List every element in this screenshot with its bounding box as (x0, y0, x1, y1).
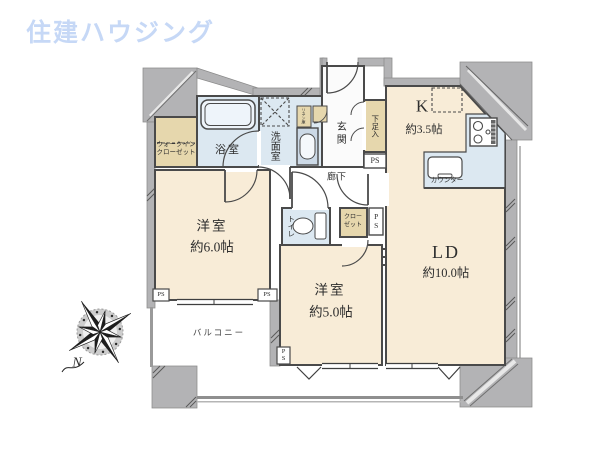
label-closet-line2: ゼット (344, 222, 362, 228)
compass-north-label: N (72, 354, 81, 372)
vanity-sink-icon (297, 128, 318, 165)
label-bedroom5: 洋室 (315, 283, 346, 300)
right-wall (505, 140, 517, 366)
label-entrance: 玄関 (333, 121, 346, 147)
label-bedroom6: 洋室 (197, 219, 228, 236)
label-bedroom6-size: 約6.0帖 (190, 240, 234, 257)
label-shoe-cabinet: 下足入 (370, 115, 379, 138)
label-ps-entrance: PS (371, 156, 380, 166)
window-bedroom6 (177, 299, 253, 305)
bathtub-icon (201, 100, 255, 129)
label-hallway: 廊下 (327, 171, 347, 182)
label-wic-line2: クローゼット (157, 149, 196, 156)
top-wall-bath (253, 88, 330, 96)
company-logo: 住建ハウジング (26, 13, 215, 49)
room-entrance (322, 66, 364, 167)
toilet-door (292, 172, 328, 208)
label-linen: リネン庫 (302, 108, 307, 124)
window-living (386, 363, 438, 369)
balcony-rail (197, 396, 463, 399)
floor-plan-page: 住建ハウジング 浴室 洗面室 ウォークイン クローゼット 玄関 下足入 廊下 リ… (0, 0, 600, 450)
balcony-left-edge (150, 307, 153, 367)
label-ps-bedroom5: PS (279, 348, 287, 362)
label-walk-in-closet: ウォークイン クローゼット (157, 141, 196, 157)
window-bedroom5 (322, 363, 378, 369)
label-ps-bedroom6-left: PS (157, 291, 164, 299)
label-washroom: 洗面室 (267, 131, 280, 161)
label-living-dining-size: 約10.0帖 (423, 266, 470, 282)
label-kitchen-size: 約3.5帖 (405, 123, 442, 137)
label-ps-closet: PS (371, 212, 380, 230)
label-balcony: バルコニー (193, 328, 245, 339)
top-wall-kitchen (384, 78, 462, 86)
left-wall (147, 122, 155, 308)
box-small-storage (313, 106, 327, 122)
kitchen-sink-icon (428, 157, 462, 178)
label-closet: クロー ゼット (344, 215, 362, 230)
label-bathroom: 浴室 (215, 144, 241, 158)
balcony-step-living (438, 367, 460, 379)
label-kitchen: K (416, 95, 430, 116)
floor-plan-drawing (0, 0, 600, 450)
label-closet-line1: クロー (344, 215, 362, 221)
stove-icon (470, 118, 497, 146)
label-toilet: トイレ (286, 215, 295, 238)
label-living-dining: LD (432, 241, 460, 264)
diagonal-wall-top-left (197, 68, 258, 96)
label-counter: カウンター (431, 177, 464, 185)
label-bedroom5-size: 約5.0帖 (309, 305, 353, 322)
label-ps-bedroom6-right: PS (263, 291, 270, 299)
label-wic-line1: ウォークイン (157, 141, 196, 148)
balcony-step-bedroom5 (297, 367, 321, 379)
